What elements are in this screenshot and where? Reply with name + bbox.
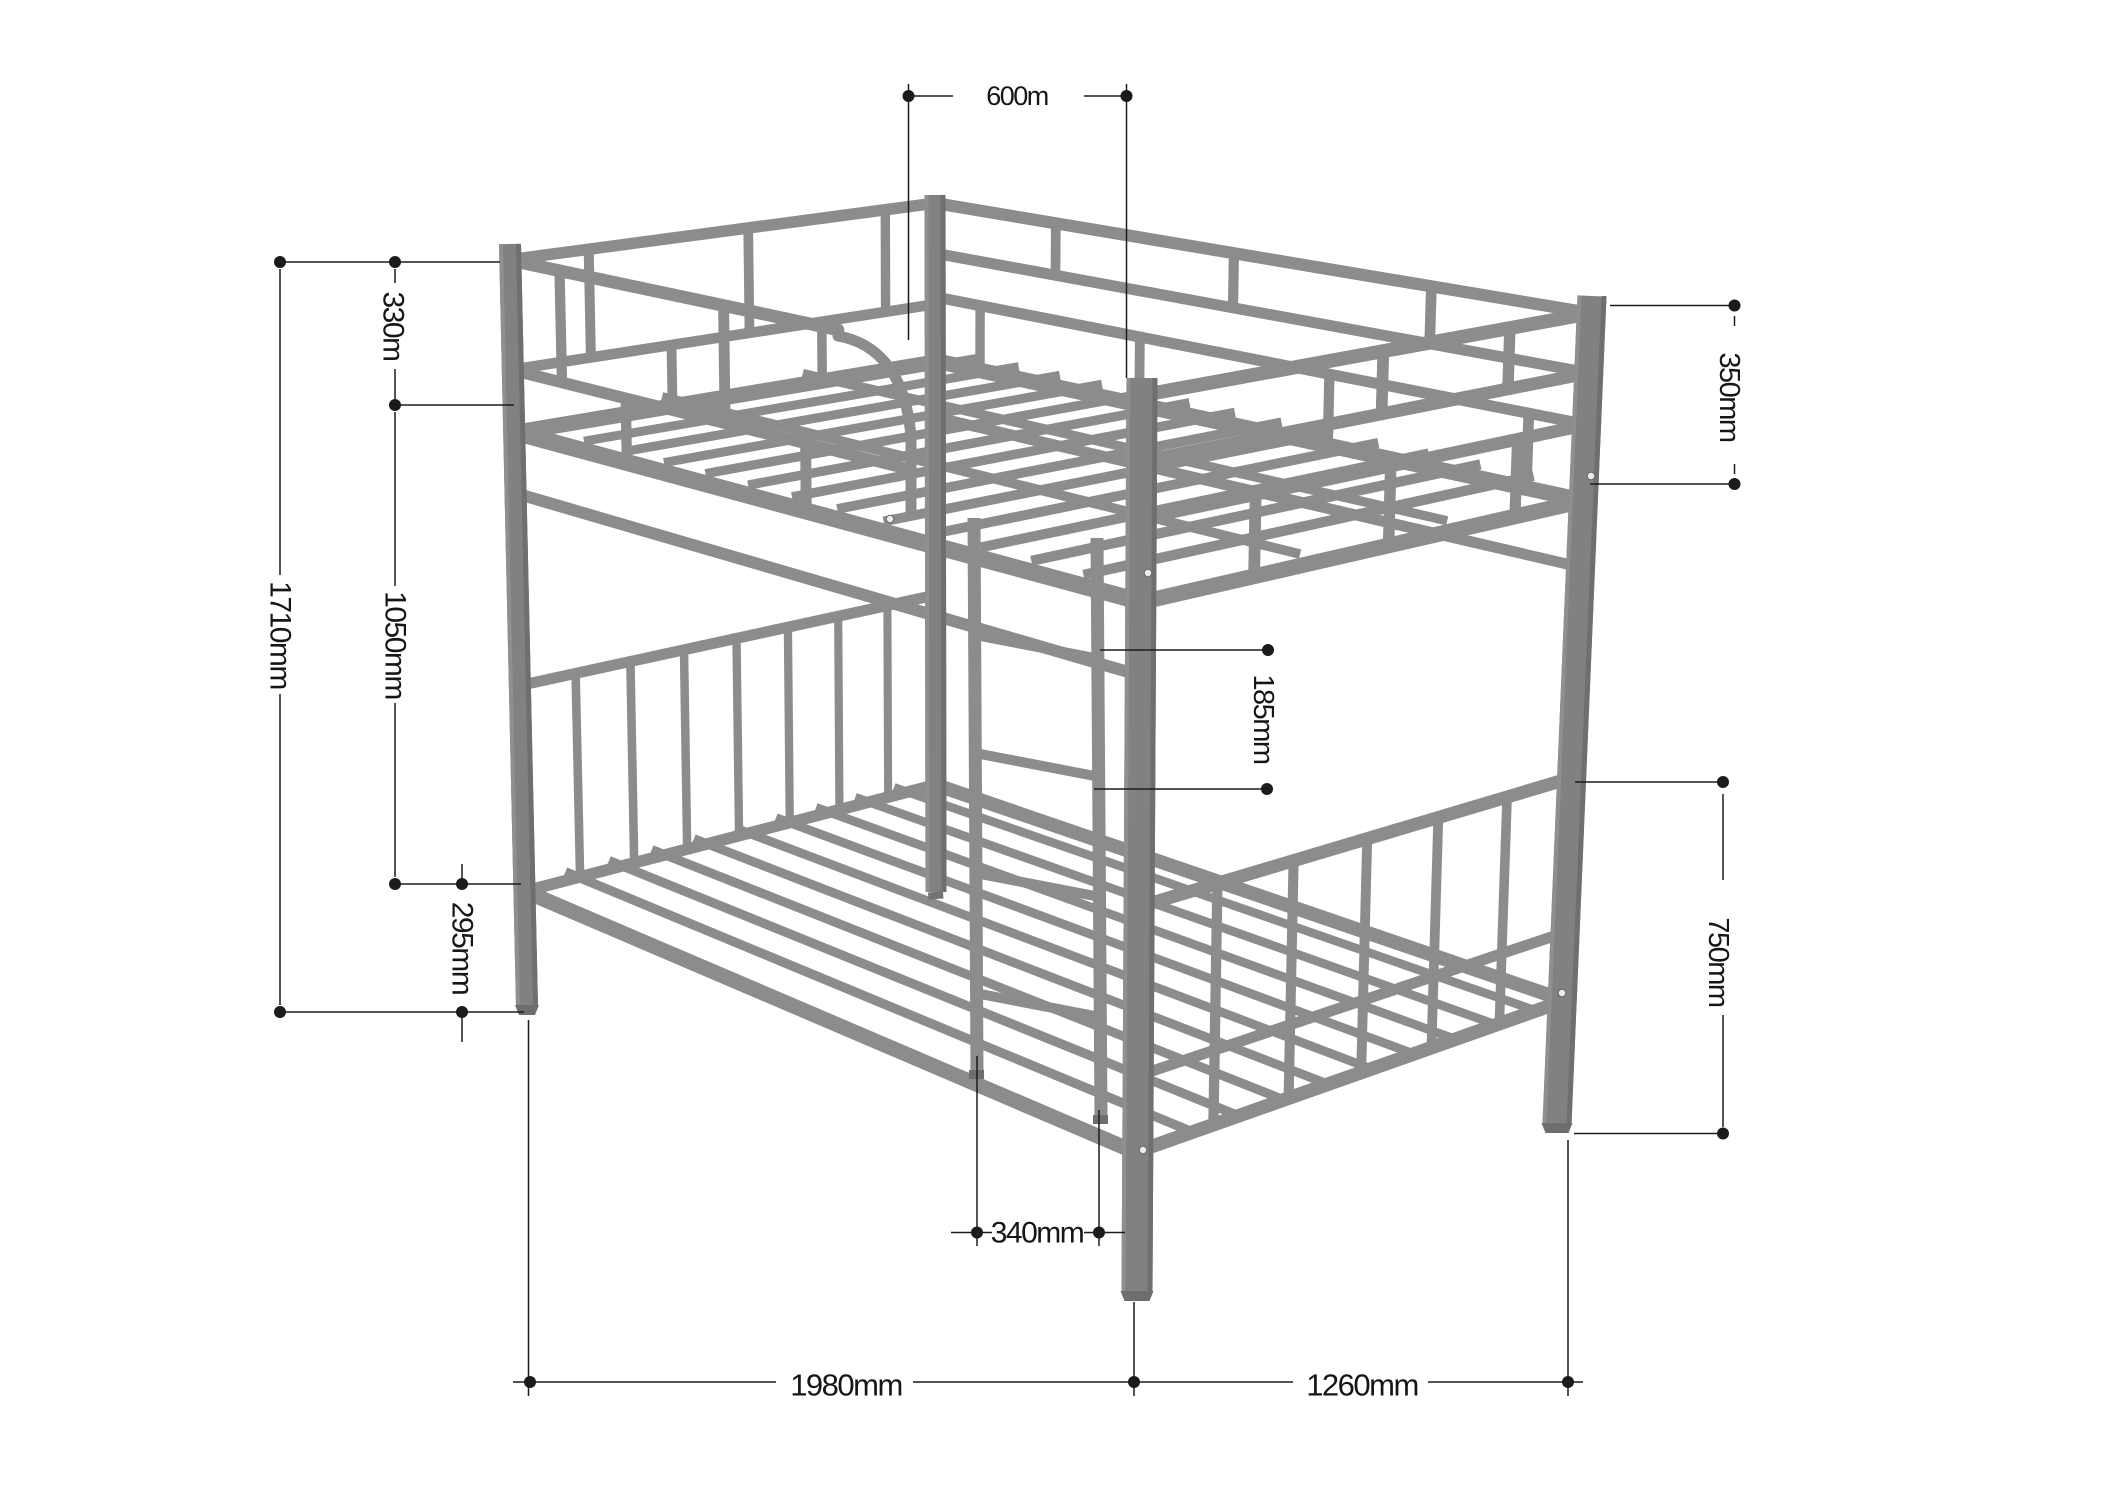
svg-text:1710mm: 1710mm: [264, 581, 297, 689]
svg-text:1260mm: 1260mm: [1306, 1368, 1418, 1403]
svg-text:295mm: 295mm: [446, 902, 479, 995]
svg-text:1050mm: 1050mm: [379, 591, 412, 699]
svg-text:750mm: 750mm: [1702, 917, 1734, 1007]
svg-text:185mm: 185mm: [1247, 674, 1279, 764]
svg-text:600m: 600m: [986, 81, 1048, 111]
svg-text:340mm: 340mm: [991, 1217, 1084, 1250]
svg-text:350mm: 350mm: [1713, 352, 1745, 442]
svg-text:330m: 330m: [377, 291, 410, 361]
svg-text:1980mm: 1980mm: [790, 1368, 902, 1403]
